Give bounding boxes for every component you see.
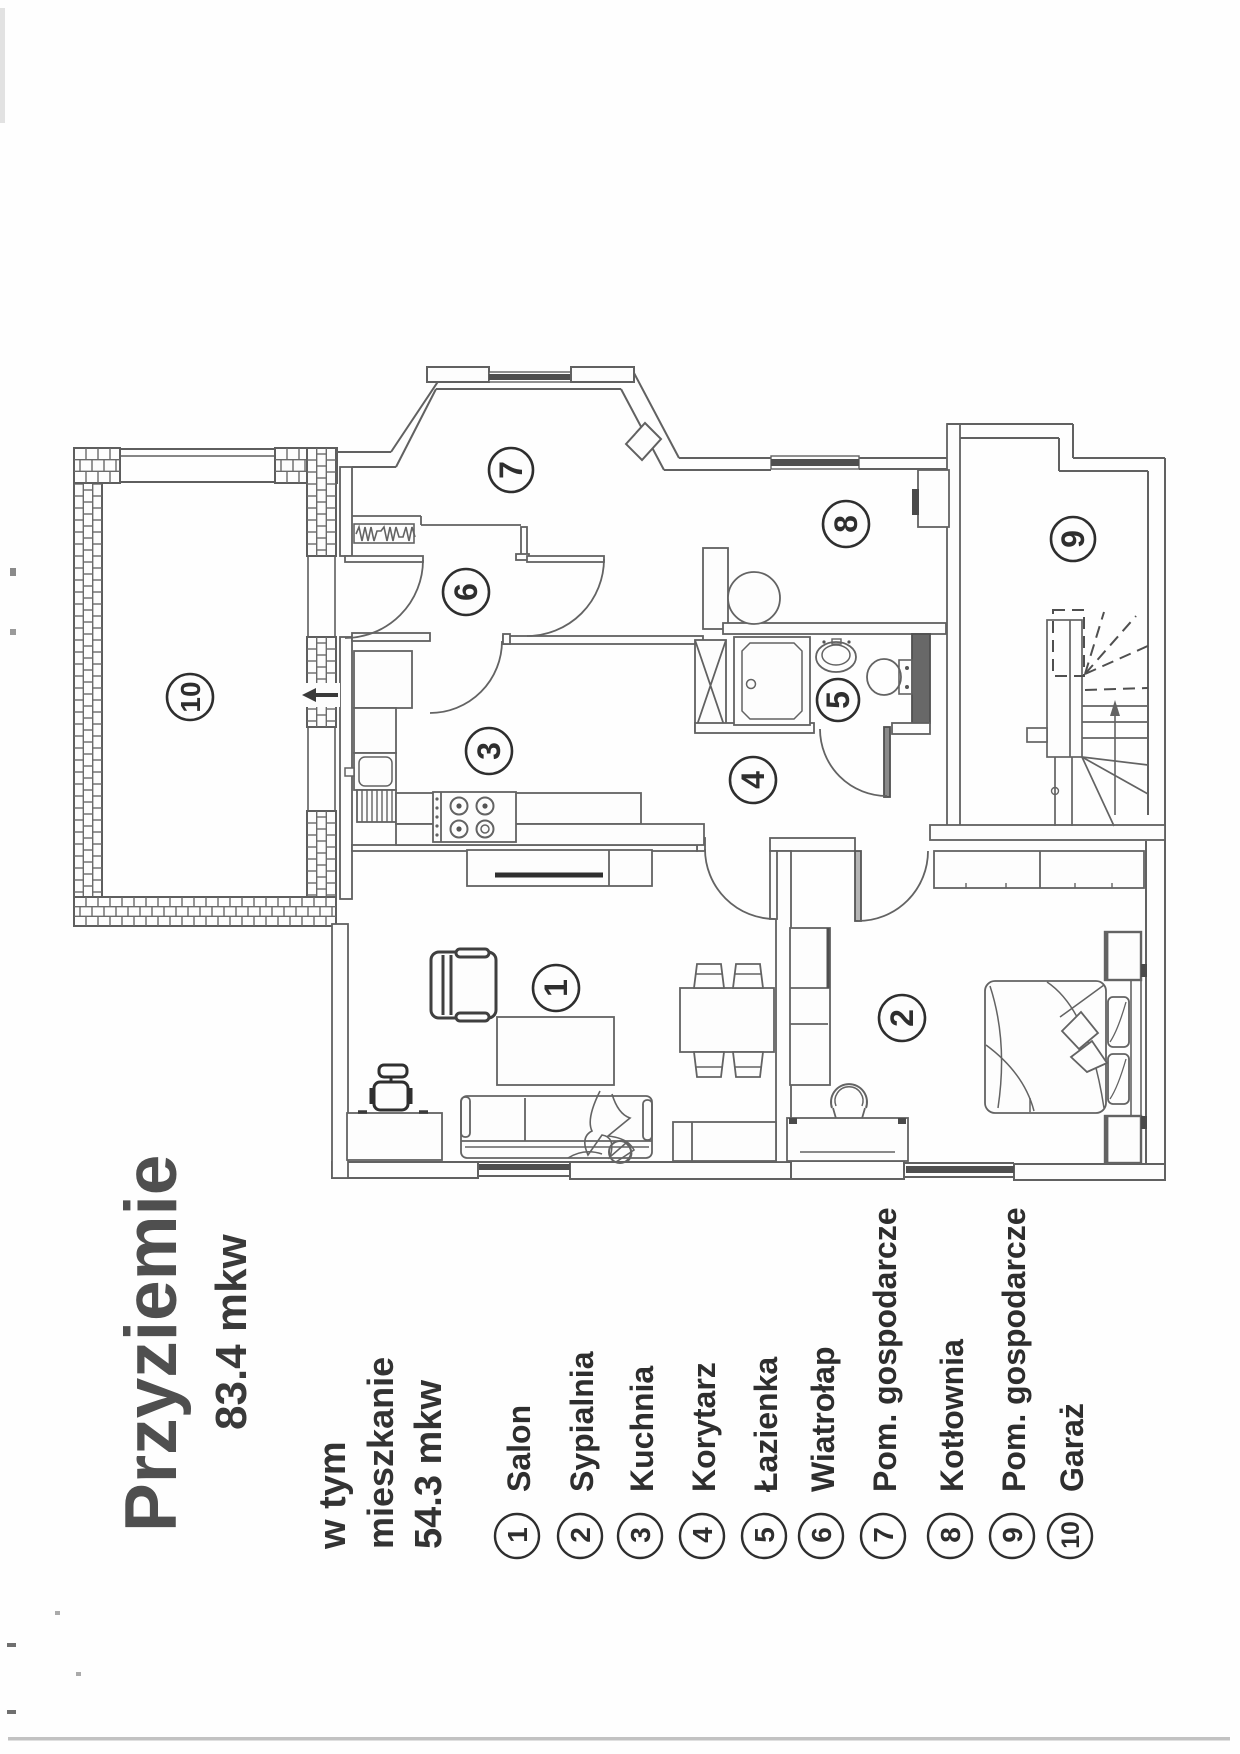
svg-text:5: 5 <box>749 1527 780 1543</box>
svg-text:8: 8 <box>935 1527 966 1543</box>
svg-text:Pom. gospodarcze: Pom. gospodarcze <box>867 1208 903 1493</box>
svg-text:w tym: w tym <box>312 1441 354 1550</box>
svg-text:mieszkanie: mieszkanie <box>360 1357 401 1549</box>
svg-text:4: 4 <box>687 1527 718 1543</box>
svg-text:1: 1 <box>502 1527 533 1543</box>
svg-text:2: 2 <box>884 1009 920 1027</box>
svg-text:Wiatrołap: Wiatrołap <box>805 1347 841 1493</box>
svg-text:Łazienka: Łazienka <box>748 1357 784 1492</box>
svg-text:1: 1 <box>538 979 574 997</box>
svg-text:4: 4 <box>735 771 771 789</box>
svg-text:Przyziemie: Przyziemie <box>111 1155 192 1532</box>
svg-text:10: 10 <box>1057 1521 1085 1549</box>
svg-text:7: 7 <box>868 1527 899 1543</box>
svg-text:54.3 mkw: 54.3 mkw <box>408 1380 450 1549</box>
svg-text:6: 6 <box>806 1527 837 1543</box>
svg-text:Sypialnia: Sypialnia <box>564 1351 600 1492</box>
svg-text:8: 8 <box>828 515 864 533</box>
svg-text:7: 7 <box>493 461 529 479</box>
svg-text:Korytarz: Korytarz <box>686 1362 722 1492</box>
svg-text:5: 5 <box>820 691 856 709</box>
svg-text:2: 2 <box>565 1527 596 1543</box>
svg-text:Salon: Salon <box>501 1405 537 1492</box>
svg-text:9: 9 <box>1055 530 1091 548</box>
svg-text:Pom. gospodarcze: Pom. gospodarcze <box>996 1208 1032 1493</box>
svg-text:Garaż: Garaż <box>1054 1403 1090 1492</box>
svg-text:83.4 mkw: 83.4 mkw <box>207 1234 256 1430</box>
svg-text:3: 3 <box>625 1527 656 1543</box>
svg-text:Kotłownia: Kotłownia <box>934 1339 970 1492</box>
svg-text:10: 10 <box>175 681 206 712</box>
svg-text:Kuchnia: Kuchnia <box>624 1366 660 1492</box>
svg-text:6: 6 <box>448 583 484 601</box>
svg-text:9: 9 <box>997 1527 1028 1543</box>
svg-text:3: 3 <box>471 742 507 760</box>
